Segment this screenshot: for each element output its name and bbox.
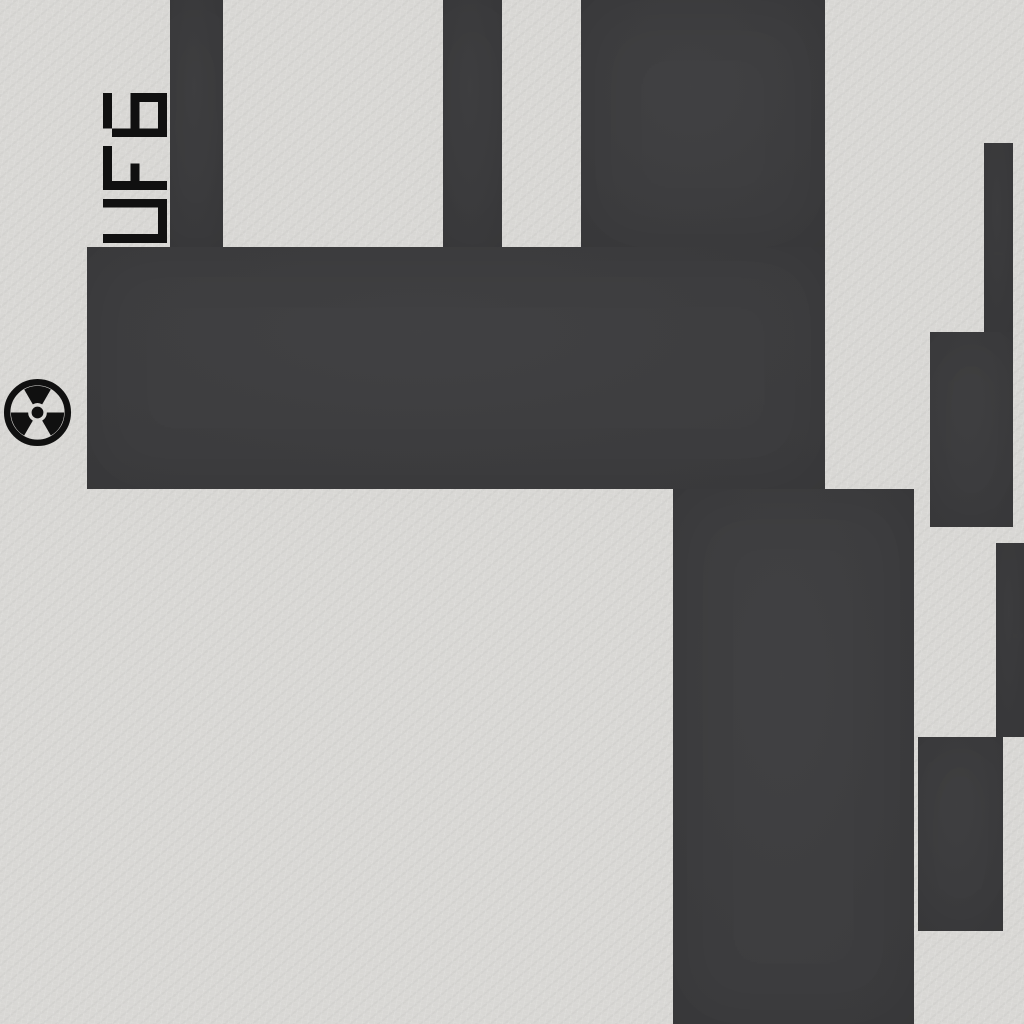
bar-right-upper: [984, 143, 1013, 332]
block-main-horizontal: [87, 247, 825, 489]
bar-right-edge: [996, 543, 1024, 737]
trefoil-center-dot: [32, 407, 44, 419]
block-right-upper: [930, 332, 1013, 527]
uf6-label-pixel-text: [103, 93, 167, 243]
radiation-icon: [2, 377, 73, 448]
duct-top-left: [170, 0, 223, 248]
trefoil-blade-top: [24, 386, 51, 405]
uf6-label: [103, 93, 167, 243]
duct-top-middle: [443, 0, 502, 248]
block-top-right: [581, 0, 825, 248]
game-map[interactable]: [0, 0, 1024, 1024]
block-right-lower: [918, 737, 1003, 931]
duct-lower-vertical: [673, 489, 914, 1024]
